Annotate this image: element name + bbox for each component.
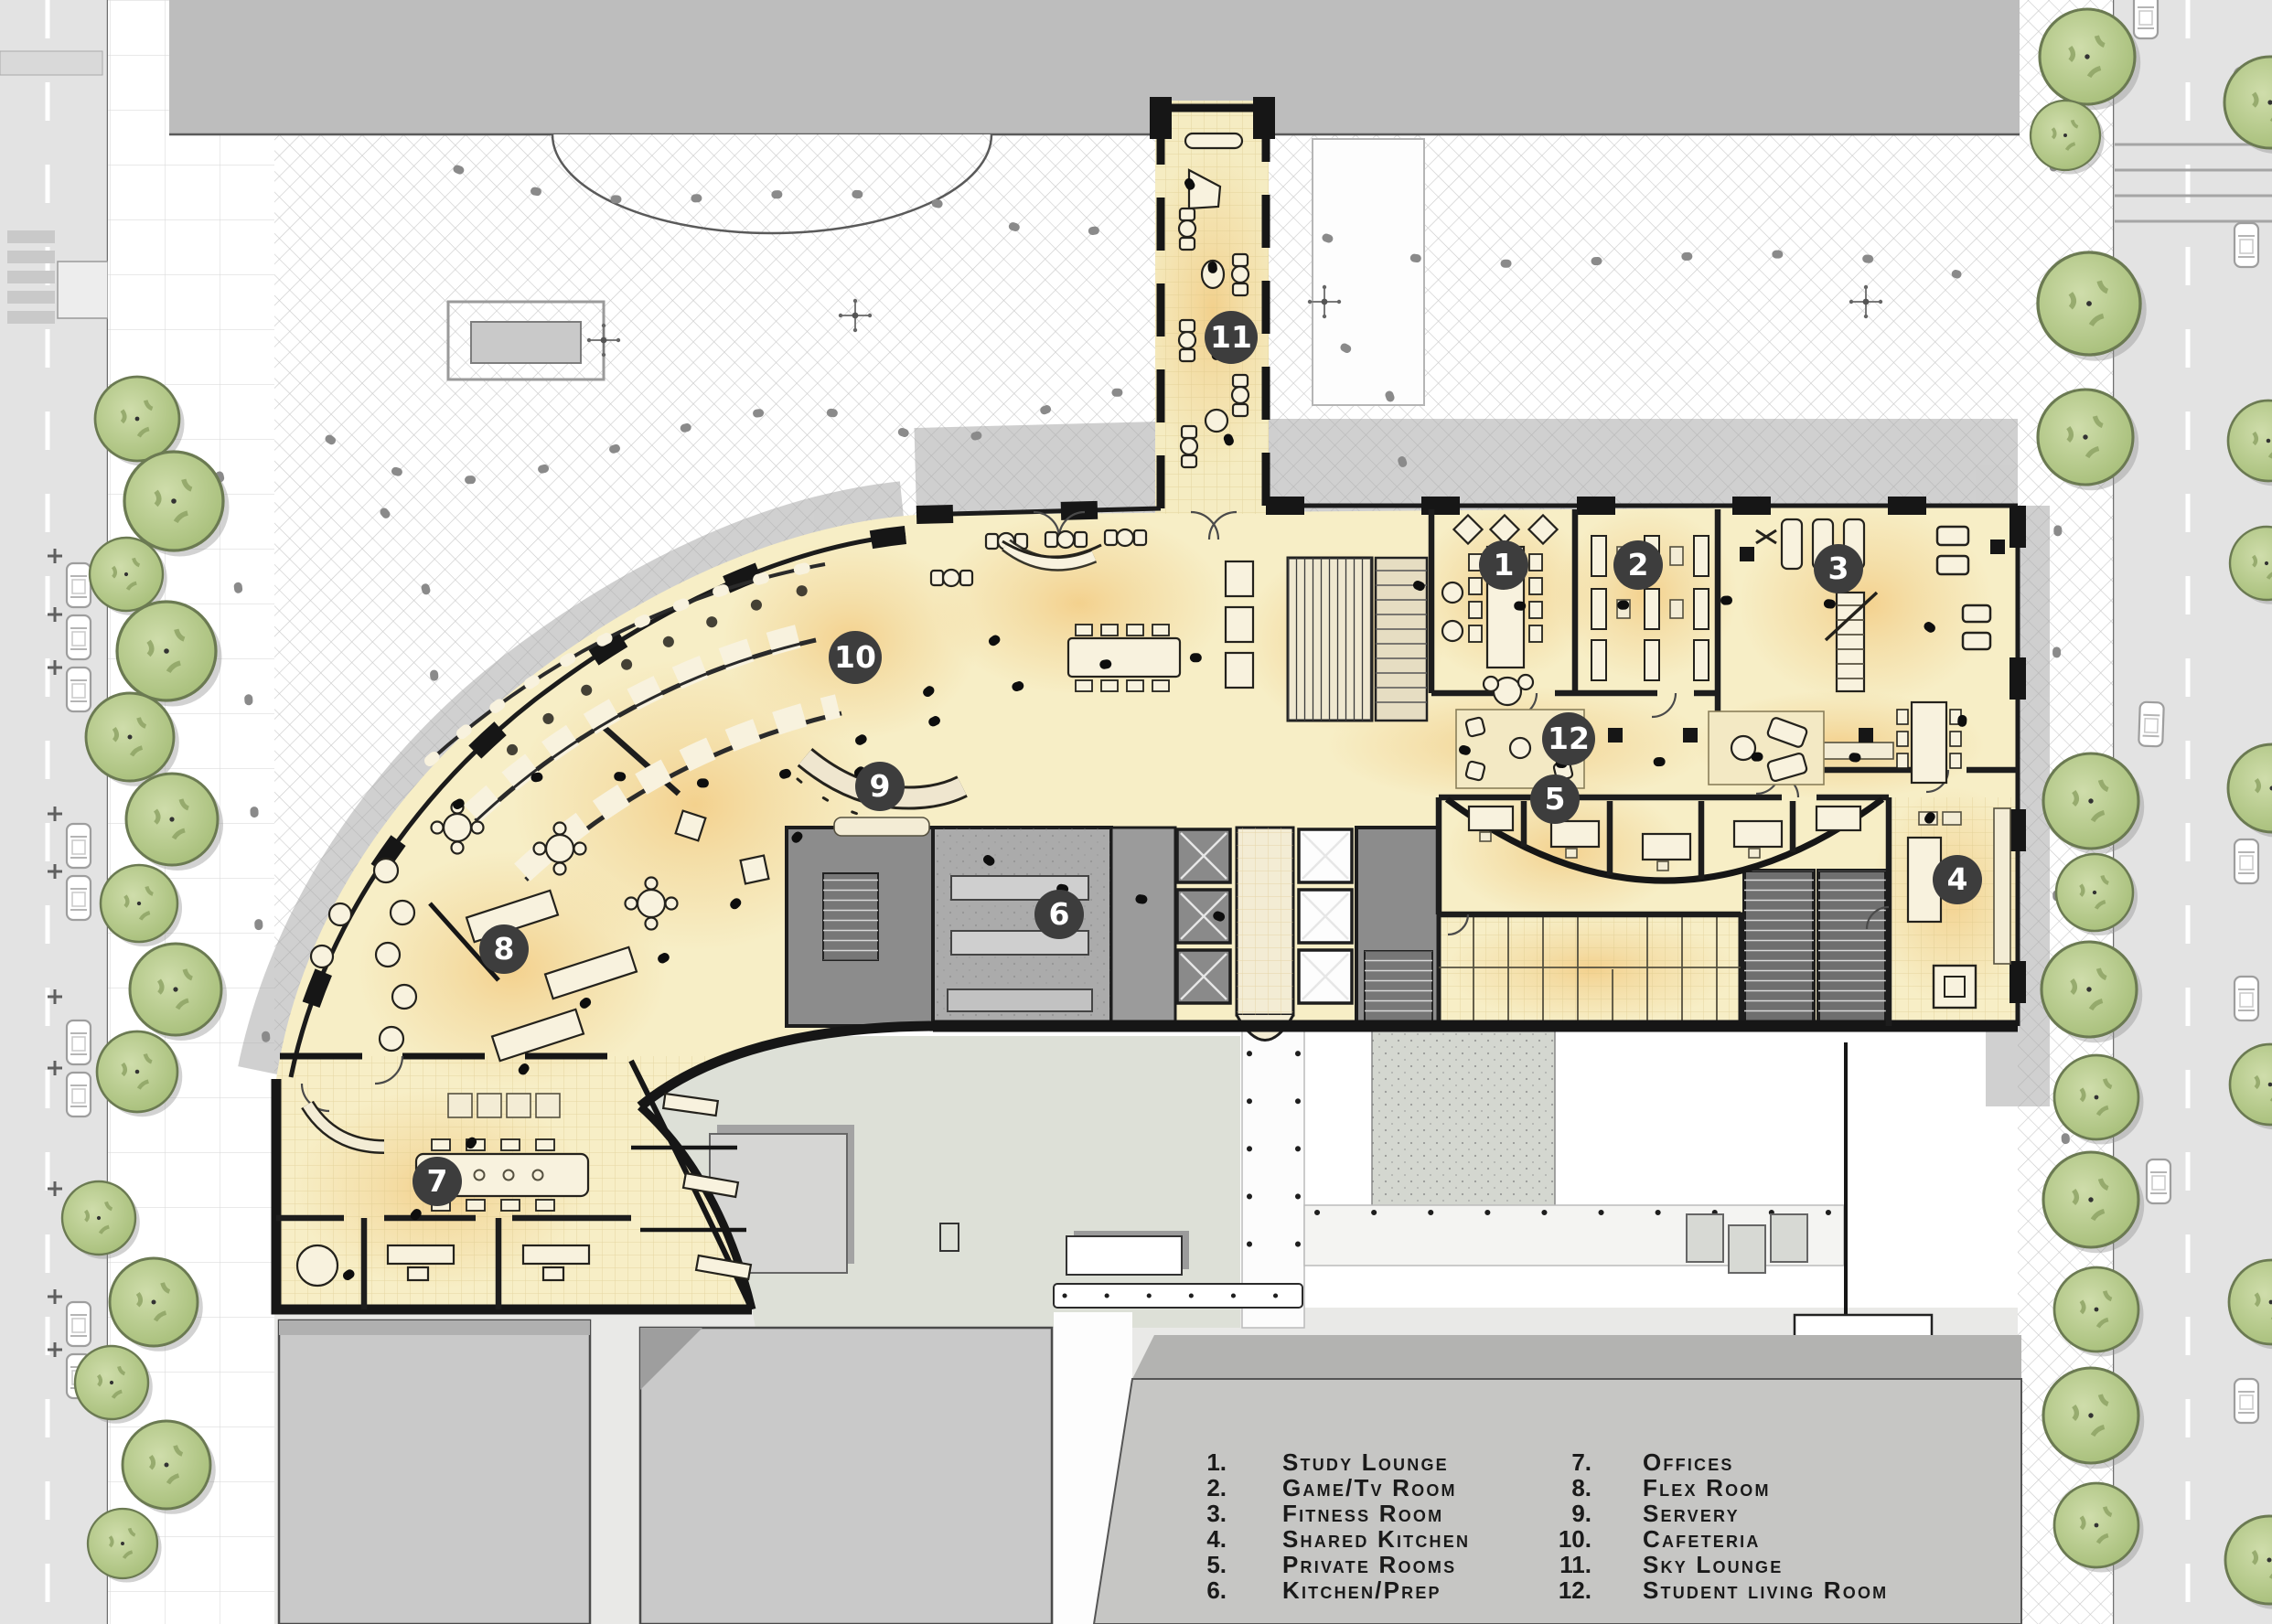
svg-text:7: 7: [427, 1163, 448, 1199]
svg-text:Game/Tv Room: Game/Tv Room: [1282, 1474, 1457, 1501]
svg-text:12.: 12.: [1559, 1576, 1591, 1604]
svg-text:1: 1: [1494, 547, 1515, 582]
svg-text:4.: 4.: [1206, 1525, 1227, 1553]
svg-text:11: 11: [1210, 319, 1252, 355]
svg-text:2: 2: [1628, 547, 1649, 582]
svg-text:10.: 10.: [1559, 1525, 1591, 1553]
svg-text:Study Lounge: Study Lounge: [1282, 1448, 1449, 1476]
svg-text:5: 5: [1545, 781, 1566, 817]
room-marker-cafeteria: 10: [829, 631, 882, 684]
svg-text:7.: 7.: [1571, 1448, 1591, 1476]
svg-text:10: 10: [834, 639, 876, 675]
legend-item-10: 10. Cafeteria: [1559, 1525, 1761, 1553]
site-plan-page: 1 2 3 4 5 6 7 8 9 10 11 12: [0, 0, 2272, 1624]
svg-text:Shared Kitchen: Shared Kitchen: [1282, 1525, 1470, 1553]
walkway: [1054, 1284, 1302, 1308]
svg-text:4: 4: [1947, 861, 1968, 897]
svg-text:Student living Room: Student living Room: [1643, 1576, 1888, 1604]
room-marker-game-tv-room: 2: [1613, 540, 1663, 590]
floor-plan-svg: 1 2 3 4 5 6 7 8 9 10 11 12: [0, 0, 2272, 1624]
room-marker-study-lounge: 1: [1479, 540, 1528, 590]
room-marker-flex-room: 8: [479, 924, 529, 974]
svg-text:9: 9: [870, 768, 891, 804]
svg-text:Flex Room: Flex Room: [1643, 1474, 1771, 1501]
svg-text:2.: 2.: [1206, 1474, 1227, 1501]
walkway: [1242, 997, 1304, 1328]
room-marker-student-living-room: 12: [1542, 712, 1595, 765]
svg-text:3.: 3.: [1206, 1500, 1227, 1527]
adjacent-building-south: [640, 1328, 1052, 1624]
svg-text:Private Rooms: Private Rooms: [1282, 1551, 1456, 1578]
svg-text:5.: 5.: [1206, 1551, 1227, 1578]
svg-text:Offices: Offices: [1643, 1448, 1734, 1476]
planter: [1687, 1214, 1723, 1262]
svg-text:8.: 8.: [1571, 1474, 1591, 1501]
room-marker-private-rooms: 5: [1530, 775, 1580, 824]
svg-text:8: 8: [494, 931, 515, 967]
svg-text:6: 6: [1049, 896, 1070, 932]
room-marker-sky-lounge: 11: [1205, 311, 1258, 364]
svg-text:Fitness Room: Fitness Room: [1282, 1500, 1443, 1527]
room-marker-offices: 7: [413, 1157, 462, 1206]
room-marker-fitness-room: 3: [1814, 544, 1863, 593]
svg-text:9.: 9.: [1571, 1500, 1591, 1527]
svg-text:1.: 1.: [1206, 1448, 1227, 1476]
svg-text:Kitchen/Prep: Kitchen/Prep: [1282, 1576, 1441, 1604]
svg-text:6.: 6.: [1206, 1576, 1227, 1604]
legend-building-bevel: [1132, 1335, 2021, 1379]
plaza-white-panel: [1313, 139, 1424, 405]
room-marker-kitchen-prep: 6: [1034, 890, 1084, 939]
adjacent-building-southwest: [279, 1320, 590, 1624]
svg-text:Servery: Servery: [1643, 1500, 1740, 1527]
room-marker-shared-kitchen: 4: [1933, 855, 1982, 904]
planter: [1771, 1214, 1807, 1262]
svg-text:Sky Lounge: Sky Lounge: [1643, 1551, 1783, 1578]
svg-text:Cafeteria: Cafeteria: [1643, 1525, 1761, 1553]
svg-text:12: 12: [1548, 721, 1590, 756]
planter: [1729, 1225, 1765, 1273]
service-structure: [1066, 1236, 1182, 1275]
room-marker-servery: 9: [855, 762, 905, 811]
elevator-bank-east: [1299, 829, 1352, 1003]
svg-text:11.: 11.: [1559, 1551, 1591, 1578]
svg-text:3: 3: [1828, 550, 1849, 586]
